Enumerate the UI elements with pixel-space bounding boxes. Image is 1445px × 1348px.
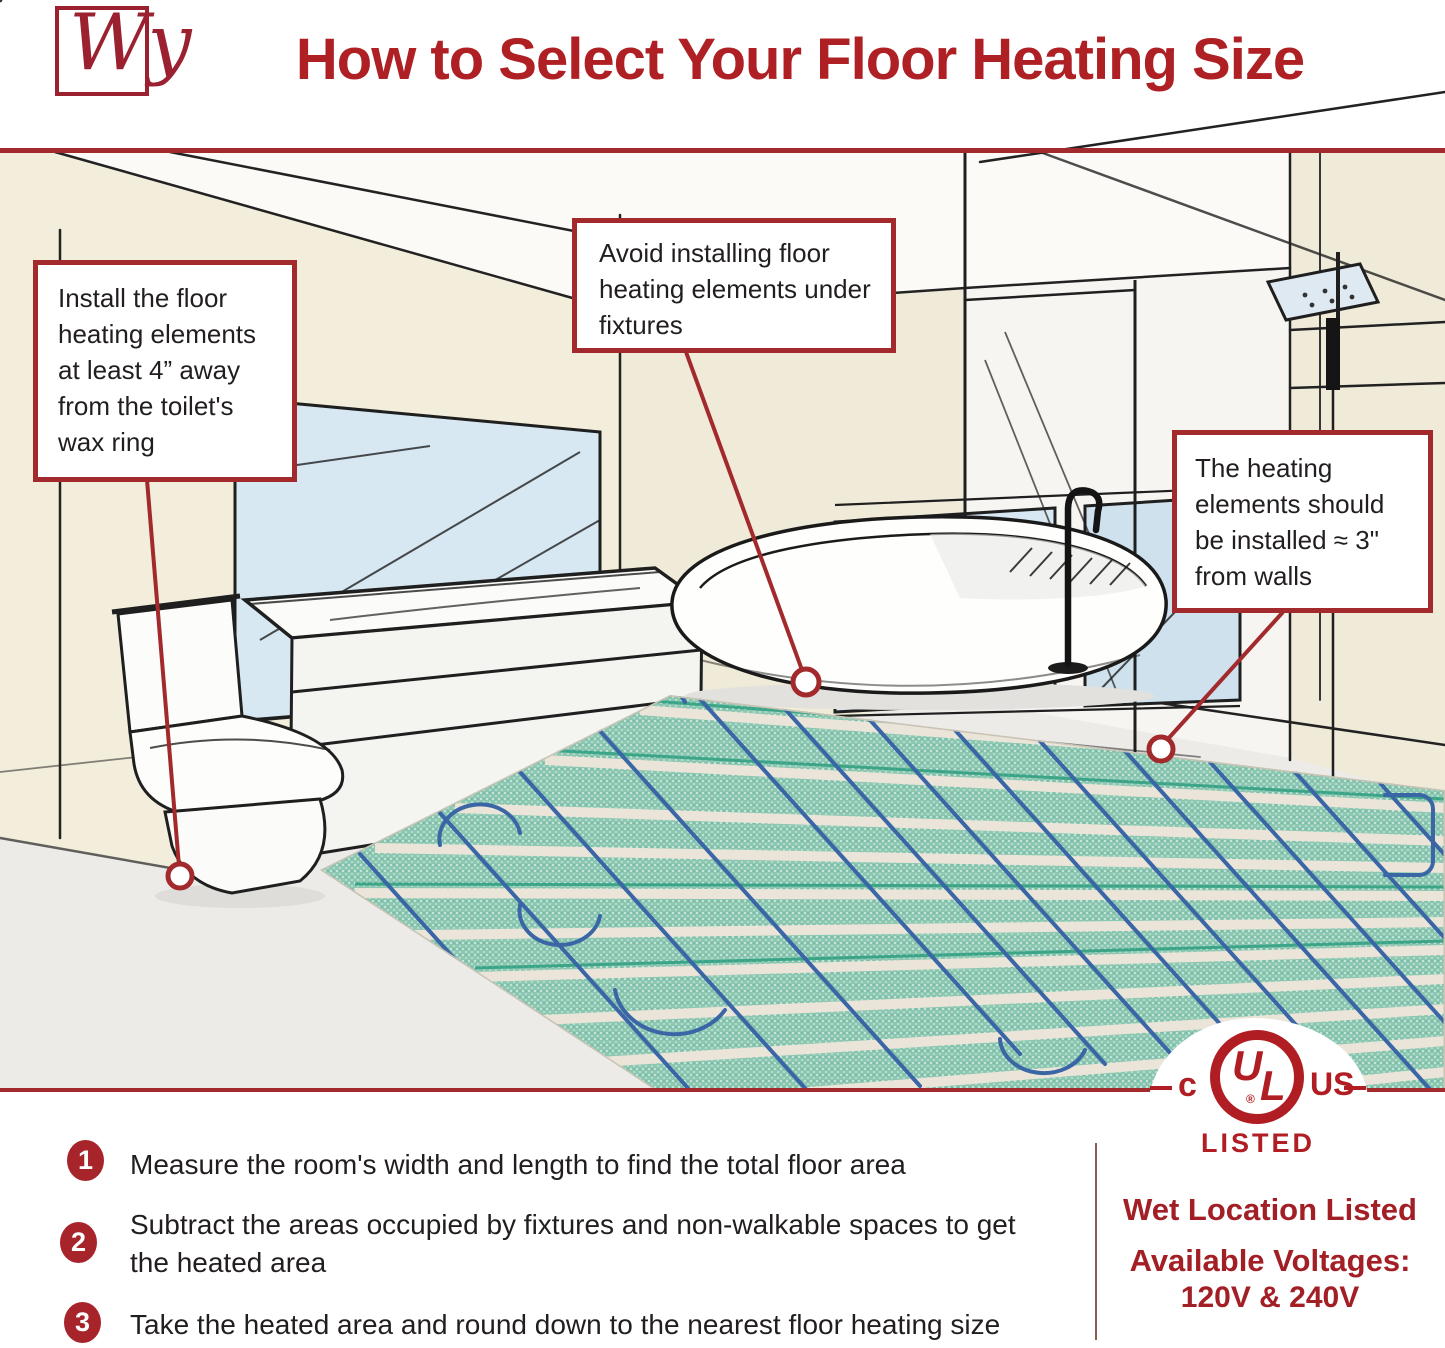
marker-toilet bbox=[168, 864, 192, 888]
callout-avoid-fixtures: Avoid installing floor heating elements … bbox=[572, 218, 896, 353]
step-3-badge: 3 bbox=[64, 1302, 101, 1343]
ul-us-label: US bbox=[1310, 1066, 1354, 1103]
ul-dash-right-icon bbox=[1344, 1086, 1366, 1090]
marker-wall bbox=[1149, 737, 1173, 761]
callout-distance-from-walls: The heating elements should be installed… bbox=[1172, 430, 1433, 613]
step-2-badge: 2 bbox=[60, 1222, 97, 1263]
ul-c-label: c bbox=[1178, 1066, 1197, 1105]
cul-us-listed-badge: c U L ® US LISTED bbox=[1148, 1018, 1368, 1178]
callout-toilet-wax-ring: Install the floor heating elements at le… bbox=[33, 260, 297, 482]
brand-logo-script: Wy bbox=[69, 4, 192, 82]
page-title: How to Select Your Floor Heating Size bbox=[200, 26, 1400, 93]
step-3-text: Take the heated area and round down to t… bbox=[130, 1306, 1070, 1344]
marker-bathtub bbox=[793, 669, 819, 695]
voltages-value: 120V & 240V bbox=[1100, 1281, 1440, 1315]
ul-registered-symbol: ® bbox=[1246, 1092, 1255, 1106]
available-voltages-label: Available Voltages: bbox=[1100, 1243, 1440, 1279]
brand-logo: Wy bbox=[55, 6, 149, 96]
ul-dash-left-icon bbox=[1150, 1086, 1172, 1090]
step-2-text: Subtract the areas occupied by fixtures … bbox=[130, 1206, 1050, 1282]
ul-letter-u: U bbox=[1232, 1042, 1262, 1090]
ul-listed-label: LISTED bbox=[1148, 1128, 1368, 1159]
step-1-badge: 1 bbox=[67, 1140, 104, 1181]
top-rule bbox=[0, 148, 1445, 153]
step-1-text: Measure the room's width and length to f… bbox=[130, 1146, 1070, 1184]
wet-location-label: Wet Location Listed bbox=[1100, 1192, 1440, 1228]
infographic-page: Wy How to Select Your Floor Heating Size… bbox=[0, 0, 1445, 1348]
ul-letter-l: L bbox=[1260, 1062, 1286, 1110]
ul-mark-icon: U L ® bbox=[1210, 1030, 1304, 1124]
